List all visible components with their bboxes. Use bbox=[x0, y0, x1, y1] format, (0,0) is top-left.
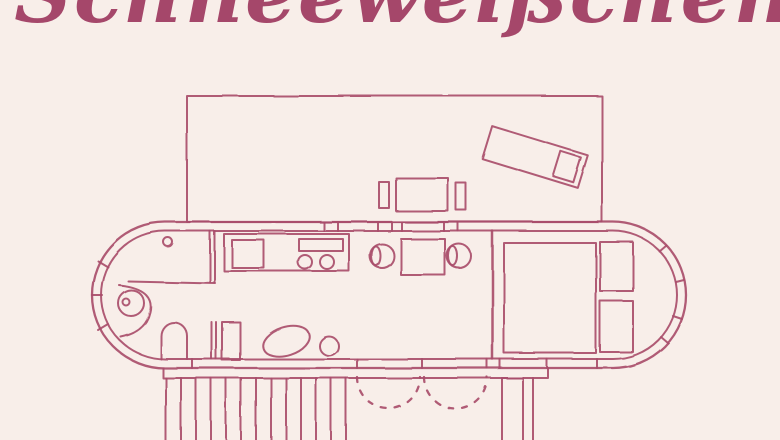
dining-table bbox=[401, 239, 445, 275]
round-stool bbox=[320, 337, 339, 356]
cabinet-top bbox=[600, 242, 633, 291]
dining-chair-right-back bbox=[449, 247, 458, 266]
oval-ottoman bbox=[259, 320, 313, 361]
vanity-knob bbox=[164, 238, 173, 247]
patio-table bbox=[396, 178, 448, 211]
window-ticks-bottom-wall bbox=[192, 359, 597, 368]
door-swing-arc-right bbox=[424, 377, 487, 409]
sink bbox=[232, 240, 264, 268]
lounger-frame bbox=[482, 126, 588, 188]
sun-lounger bbox=[482, 126, 588, 188]
basin-drain bbox=[123, 299, 130, 306]
shower-stall bbox=[222, 322, 240, 360]
door-swing-arc-left bbox=[357, 377, 420, 409]
floor-plan-canvas bbox=[0, 0, 780, 440]
floor-plan bbox=[92, 96, 686, 440]
boardwalk-planks bbox=[166, 378, 346, 440]
vanity-counter bbox=[128, 281, 215, 283]
patio-bench-left bbox=[379, 182, 389, 208]
poster-background: Schneeweißchen bbox=[0, 0, 780, 440]
dining-chair-left-back bbox=[372, 247, 381, 266]
deck-edge-band bbox=[163, 368, 548, 378]
step-platform bbox=[502, 378, 523, 440]
bed bbox=[504, 243, 596, 353]
window-ticks-right-nose bbox=[659, 245, 684, 343]
window-ticks-top-wall bbox=[324, 222, 458, 231]
deck-rectangle bbox=[187, 96, 602, 222]
cabinet-bottom bbox=[600, 301, 633, 352]
toilet bbox=[161, 323, 187, 360]
stove-panel bbox=[299, 239, 343, 251]
burner-right bbox=[320, 255, 334, 269]
patio-bench-right bbox=[456, 183, 466, 210]
burner-left bbox=[298, 255, 312, 269]
lounger-pillow bbox=[553, 151, 581, 182]
